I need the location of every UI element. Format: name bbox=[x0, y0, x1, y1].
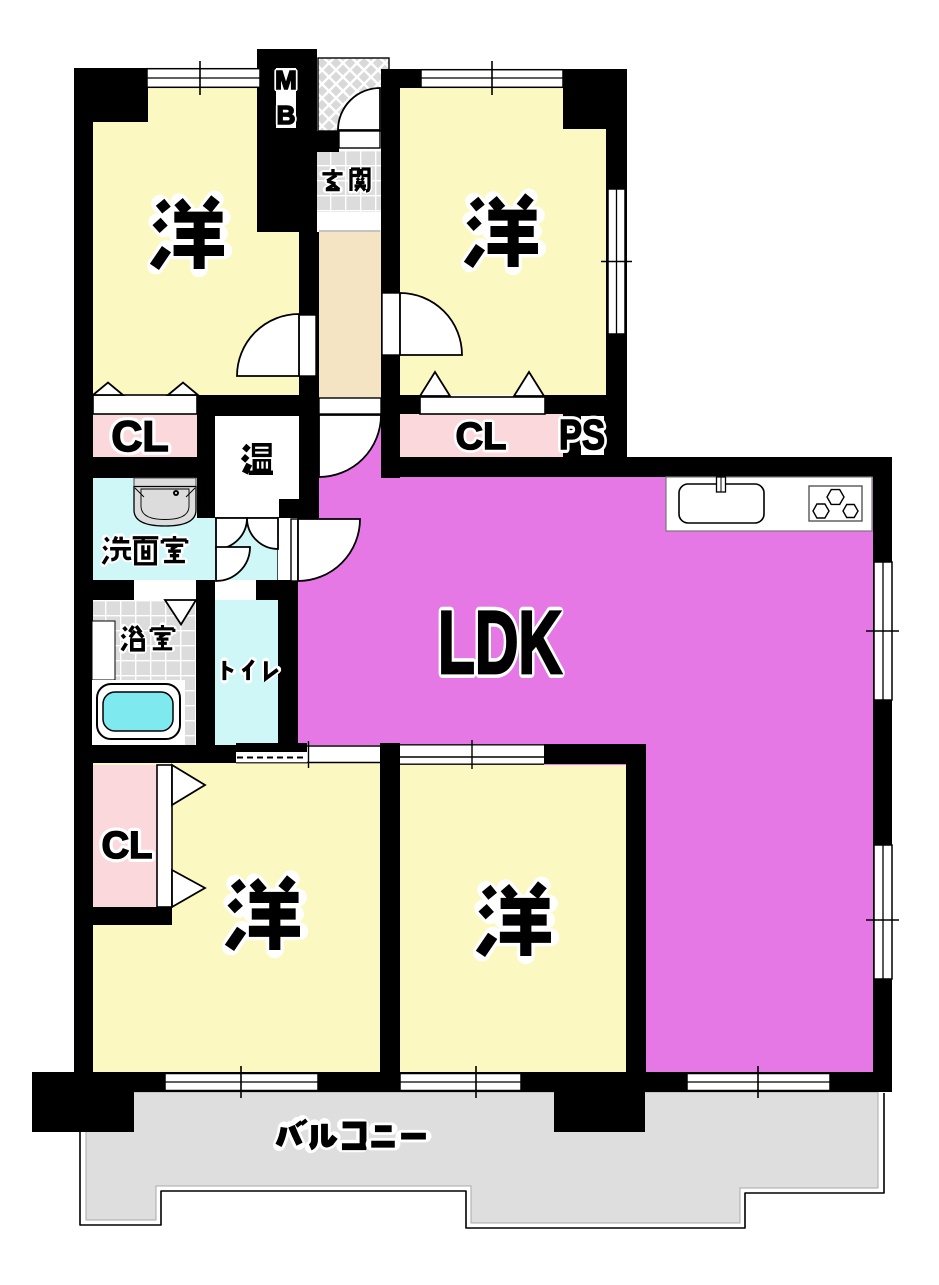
svg-text:M: M bbox=[275, 65, 297, 95]
svg-text:B: B bbox=[277, 100, 296, 130]
svg-text:CL: CL bbox=[111, 413, 168, 461]
svg-text:CL: CL bbox=[102, 825, 153, 867]
svg-text:LDK: LDK bbox=[438, 592, 562, 692]
svg-text:CL: CL bbox=[456, 416, 507, 458]
svg-text:PS: PS bbox=[559, 411, 605, 458]
